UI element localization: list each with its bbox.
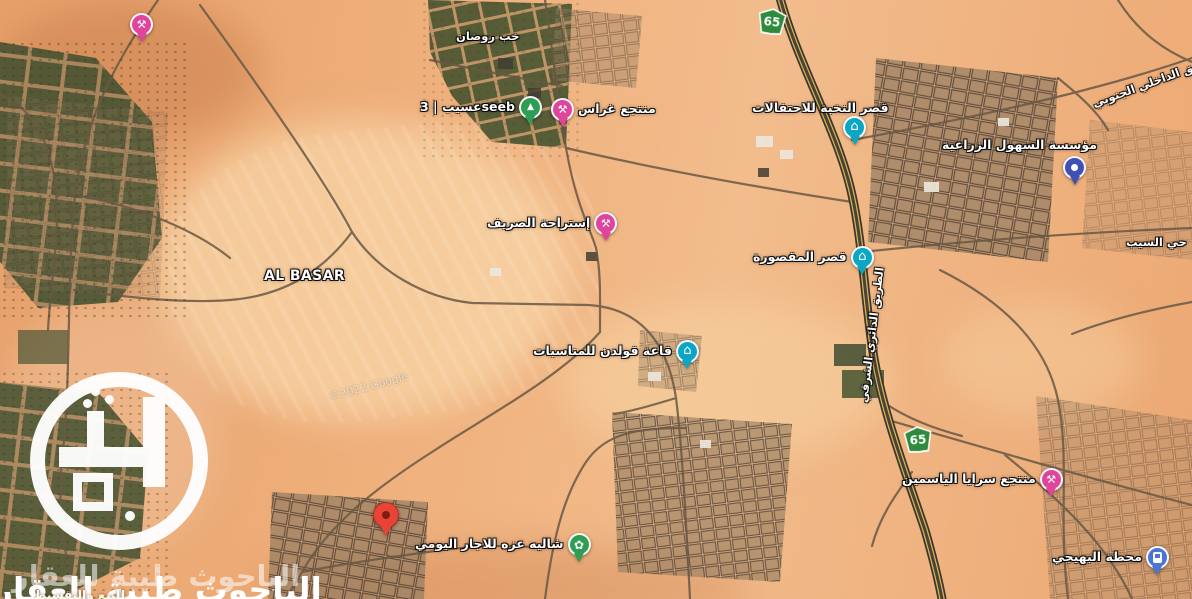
flower-icon: ✿ [574, 539, 584, 551]
pin-tail [682, 360, 692, 369]
place-label-nukhba[interactable]: قصر النخبة للاحتفالات [752, 101, 889, 115]
route-number: 65 [763, 14, 781, 30]
park-icon: ▲ [527, 103, 534, 112]
place-label-golden[interactable]: قاعة قولدن للمناسبات [533, 344, 672, 358]
palace-icon: ⌂ [683, 344, 691, 357]
pin-tail [1152, 566, 1162, 575]
resort-pin-unlabeled[interactable]: ⚒ [130, 13, 153, 44]
pickaxe-icon: ⚒ [137, 19, 147, 30]
pin-tail [601, 232, 611, 241]
gas-station-pin[interactable] [1146, 546, 1169, 577]
pickaxe-icon: ⚒ [1046, 474, 1056, 485]
fuel-pump-icon [1153, 552, 1162, 563]
palace-pin-nukhba[interactable]: ⌂ [843, 116, 866, 147]
pickaxe-icon: ⚒ [601, 218, 611, 229]
red-location-pin[interactable] [373, 502, 399, 538]
place-label-ghiras[interactable]: منتجع غراس [578, 102, 656, 116]
route-number: 65 [909, 432, 927, 447]
place-label-3seeb[interactable]: عسيب | 3seeb [420, 100, 515, 114]
pin-dot [382, 511, 390, 519]
resort-pin[interactable]: ⚒ [594, 212, 617, 243]
palace-icon: ⌂ [858, 250, 866, 263]
place-golden-hall[interactable]: قاعة قولدن للمناسبات ⌂ [533, 340, 699, 371]
area-label-hay-alseeb: حي السيب [1126, 236, 1187, 249]
place-azza-chalet[interactable]: شاليه عزه للاجار اليومي ✿ [415, 533, 591, 564]
pin-tail [1070, 176, 1080, 185]
dot-icon [1071, 164, 1078, 171]
place-ghiras-resort[interactable]: ⚒ منتجع غراس [551, 98, 656, 129]
pin-tail [857, 266, 867, 275]
pickaxe-icon: ⚒ [558, 104, 568, 115]
place-label-maqsura[interactable]: قصر المقصورة [753, 250, 847, 264]
road-network [0, 0, 1192, 599]
place-label-saraya[interactable]: منتجع سرايا الياسمين [902, 472, 1036, 486]
place-sarif-rest[interactable]: إستراحة الصريف ⚒ [487, 212, 617, 243]
place-label-azza[interactable]: شاليه عزه للاجار اليومي [415, 537, 564, 551]
pin-tail [558, 118, 568, 127]
palace-pin[interactable]: ⌂ [676, 340, 699, 371]
place-3seeb[interactable]: عسيب | 3seeb ▲ [420, 96, 542, 127]
pin-tail [380, 525, 392, 536]
park-pin[interactable]: ▲ [519, 96, 542, 127]
urban-blocks [4, 8, 1192, 599]
palace-icon: ⌂ [850, 120, 858, 133]
pin-tail [525, 116, 535, 125]
place-label-bahiji[interactable]: محطة البهيجي [1052, 550, 1142, 564]
pin-tail [137, 33, 147, 42]
route-shield-badge: 65 [904, 427, 932, 452]
satellite-map[interactable]: AL BASAR خب روضان حي السيب الطريق الدائر… [0, 0, 1192, 599]
pin-tail [850, 136, 860, 145]
resort-pin[interactable]: ⚒ [551, 98, 574, 129]
dot-pin-suhul[interactable] [1063, 156, 1086, 187]
pin-tail [1046, 488, 1056, 497]
area-label-al-basar: AL BASAR [264, 268, 345, 284]
place-maqsura-palace[interactable]: قصر المقصورة ⌂ [753, 246, 874, 277]
chalet-pin[interactable]: ✿ [568, 533, 591, 564]
palace-pin[interactable]: ⌂ [851, 246, 874, 277]
place-label-sarif[interactable]: إستراحة الصريف [487, 216, 590, 230]
pin-tail [574, 553, 584, 562]
place-saraya-resort[interactable]: منتجع سرايا الياسمين ⚒ [902, 468, 1063, 499]
resort-pin[interactable]: ⚒ [1040, 468, 1063, 499]
place-bahiji-station[interactable]: محطة البهيجي [1052, 546, 1169, 577]
area-label-khab-rawdan: خب روضان [456, 30, 519, 43]
place-label-suhul[interactable]: مؤسسة السهول الزراعية [942, 138, 1097, 152]
